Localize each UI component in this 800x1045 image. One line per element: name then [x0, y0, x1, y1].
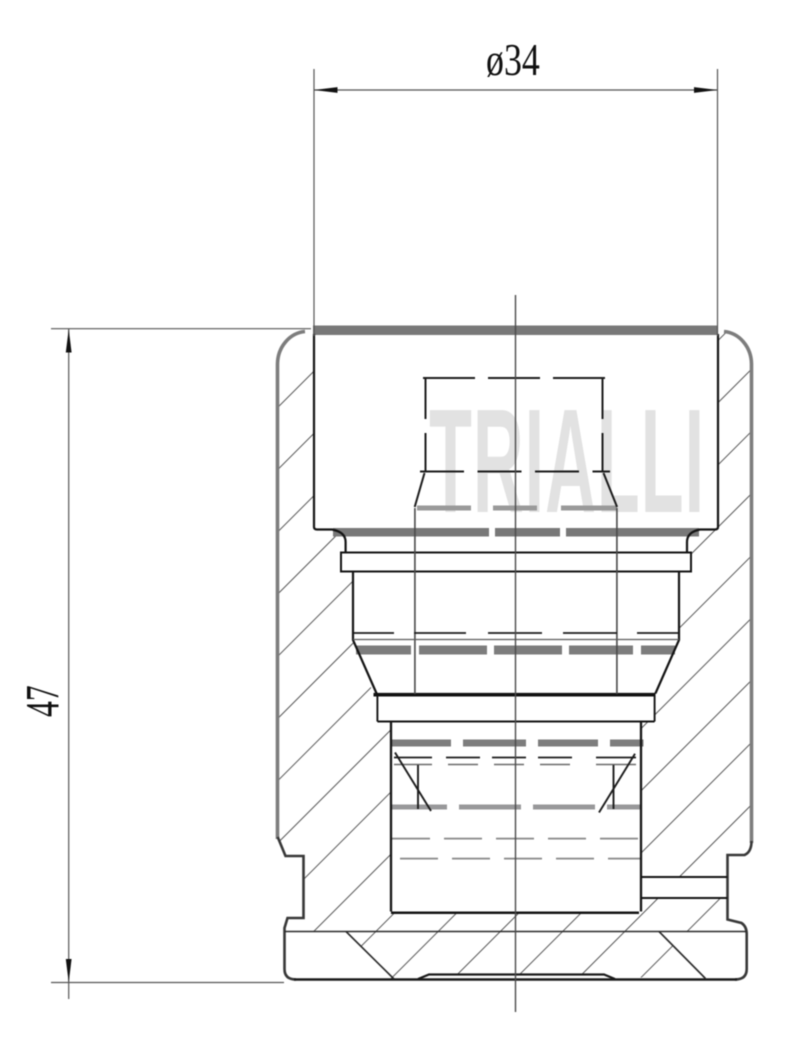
- svg-text:TRIALLI: TRIALLI: [429, 378, 705, 544]
- svg-text:ø34: ø34: [486, 34, 540, 85]
- svg-text:47: 47: [16, 685, 69, 717]
